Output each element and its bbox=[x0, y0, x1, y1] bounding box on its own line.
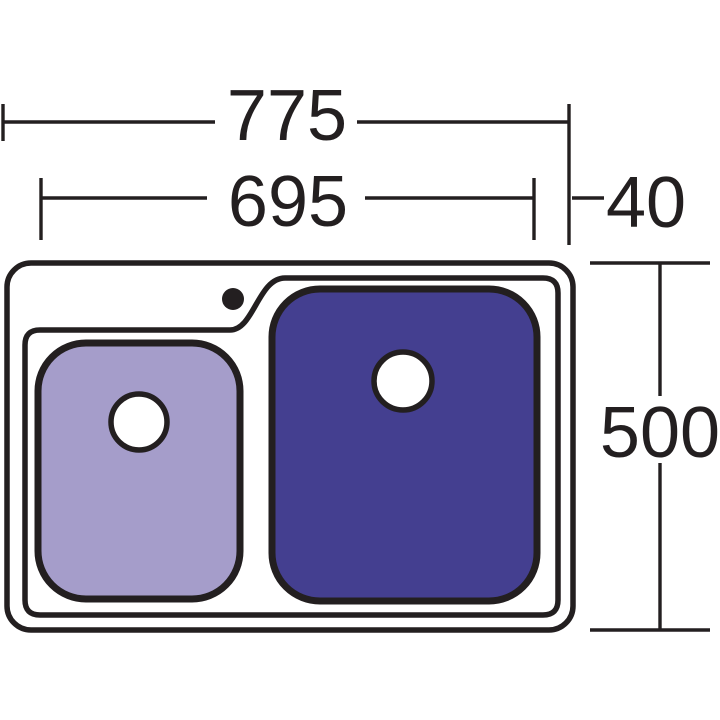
dim-40-label: 40 bbox=[606, 163, 686, 243]
sink-body bbox=[7, 263, 573, 630]
faucet-hole bbox=[222, 288, 244, 310]
dimension-bowl-span-width: 695 bbox=[41, 162, 534, 242]
dimension-right-inset: 40 bbox=[572, 163, 686, 243]
diagram-canvas: 775 695 40 500 bbox=[0, 0, 720, 720]
dim-500-label: 500 bbox=[600, 393, 720, 473]
dim-695-label: 695 bbox=[228, 162, 348, 242]
small-bowl bbox=[38, 343, 240, 599]
dim-775-label: 775 bbox=[227, 76, 347, 156]
large-bowl-drain-hole bbox=[374, 352, 432, 410]
large-bowl bbox=[272, 289, 537, 601]
sink-technical-drawing: 775 695 40 500 bbox=[0, 0, 720, 720]
small-bowl-drain-hole bbox=[111, 394, 167, 450]
dimension-depth: 500 bbox=[590, 263, 720, 630]
